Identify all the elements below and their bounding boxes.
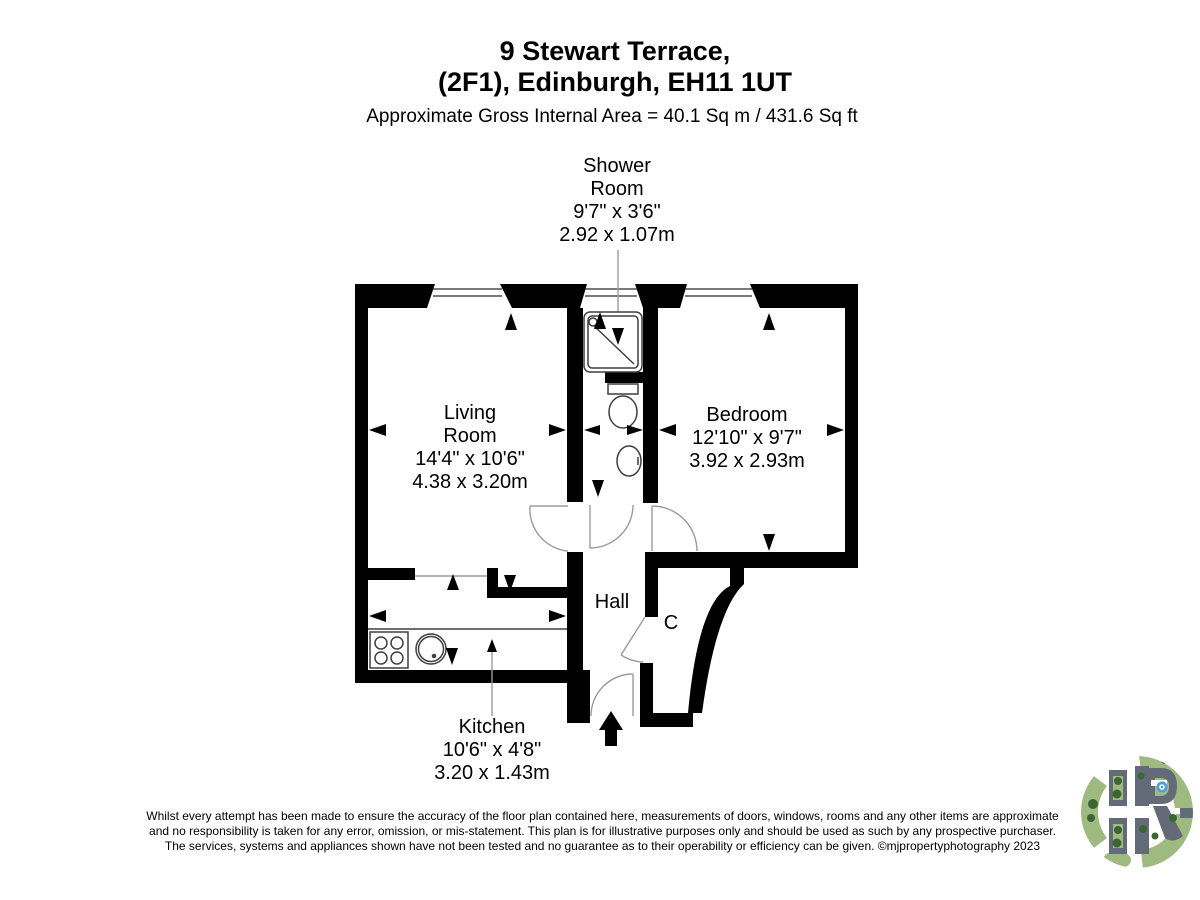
kitchen-imperial: 10'6" x 4'8" [434,739,550,762]
room-label-hall: Hall [595,591,629,614]
wall-kitchen-bottom [355,670,590,683]
wall-top-3 [635,284,687,308]
arrow-bedroom-down [763,534,775,551]
door-entrance [591,674,633,716]
window-living-room [433,289,502,296]
disclaimer-line-1: Whilst every attempt has been made to en… [0,809,1200,824]
page-title: 9 Stewart Terrace, (2F1), Edinburgh, EH1… [438,36,792,98]
title-line-1: 9 Stewart Terrace, [438,36,792,67]
bedroom-metric: 3.92 x 2.93m [689,450,805,473]
room-label-bedroom: Bedroom 12'10" x 9'7" 3.92 x 2.93m [689,404,805,473]
shower-tray [584,312,642,372]
arrow-shower-right [627,425,643,435]
arrow-kitchen-right [549,610,566,622]
room-label-kitchen: Kitchen 10'6" x 4'8" 3.20 x 1.43m [434,716,550,785]
living-name-1: Living [412,402,528,425]
shower-imperial: 9'7" x 3'6" [559,201,675,224]
door-shower-room [590,505,633,548]
shower-name-2: Room [559,178,675,201]
room-label-living: Living Room 14'4" x 10'6" 4.38 x 3.20m [412,402,528,494]
hob [370,632,408,668]
bedroom-imperial: 12'10" x 9'7" [689,427,805,450]
wall-entrance-left-jamb [567,683,590,723]
window-bedroom [685,289,752,296]
disclaimer-line-2: and no responsibility is taken for any e… [0,824,1200,839]
room-label-cupboard: C [664,612,678,635]
disclaimer-line-3: The services, systems and appliances sho… [0,839,1200,854]
arrow-living-left [369,424,386,436]
wall-shower-bedroom [643,308,658,503]
bedroom-name: Bedroom [689,404,805,427]
door-cupboard [621,617,645,662]
agency-logo [1077,752,1197,872]
wall-step-horizontal [487,587,567,598]
kitchen-name: Kitchen [434,716,550,739]
kitchen-metric: 3.20 x 1.43m [434,762,550,785]
wall-top-2 [500,284,587,308]
arrow-kitchen-vert-down [446,648,458,665]
arrow-bedroom-right [827,424,844,436]
wall-kitchen-stub [364,568,415,580]
floorplan-page: 9 Stewart Terrace, (2F1), Edinburgh, EH1… [0,0,1200,900]
logo-roundabout [1157,782,1168,793]
wall-toilet-separator [605,372,643,383]
bathroom-sink [617,446,641,476]
windows [433,289,752,296]
arrow-kitchen-left [369,610,386,622]
wall-living-hall-upper [567,308,583,502]
wall-bedroom-right [845,284,858,568]
toilet [608,384,638,428]
arrow-bedroom-up [763,313,775,330]
arrow-bedroom-left [659,424,676,436]
door-living-room [530,506,568,551]
wall-hall-right-upper [645,568,658,617]
title-line-2: (2F1), Edinburgh, EH11 1UT [438,67,792,98]
room-label-shower: Shower Room 9'7" x 3'6" 2.92 x 1.07m [559,155,675,247]
door-bedroom [652,506,697,551]
wall-bottom-right [640,713,693,727]
arrow-living-right [549,424,566,436]
living-imperial: 14'4" x 10'6" [412,448,528,471]
entrance-arrow [599,711,623,746]
wall-left [355,284,368,683]
kitchen-sink [416,634,446,664]
floorplan-drawing [0,0,1200,900]
arrow-shower-left [584,425,600,435]
wall-bedroom-bottom [645,552,858,568]
living-metric: 4.38 x 3.20m [412,471,528,494]
arrow-kitchen-leader-up [487,639,497,652]
living-name-2: Room [412,425,528,448]
disclaimer: Whilst every attempt has been made to en… [0,809,1200,854]
arrow-living-up [505,313,517,330]
shower-name-1: Shower [559,155,675,178]
shower-metric: 2.92 x 1.07m [559,224,675,247]
wall-living-hall-lower [567,552,583,670]
arrow-shower-down [592,480,604,497]
window-shower-room [585,289,637,296]
curved-wall [688,568,744,713]
wall-top-4 [750,284,858,308]
area-subtitle: Approximate Gross Internal Area = 40.1 S… [366,106,858,128]
